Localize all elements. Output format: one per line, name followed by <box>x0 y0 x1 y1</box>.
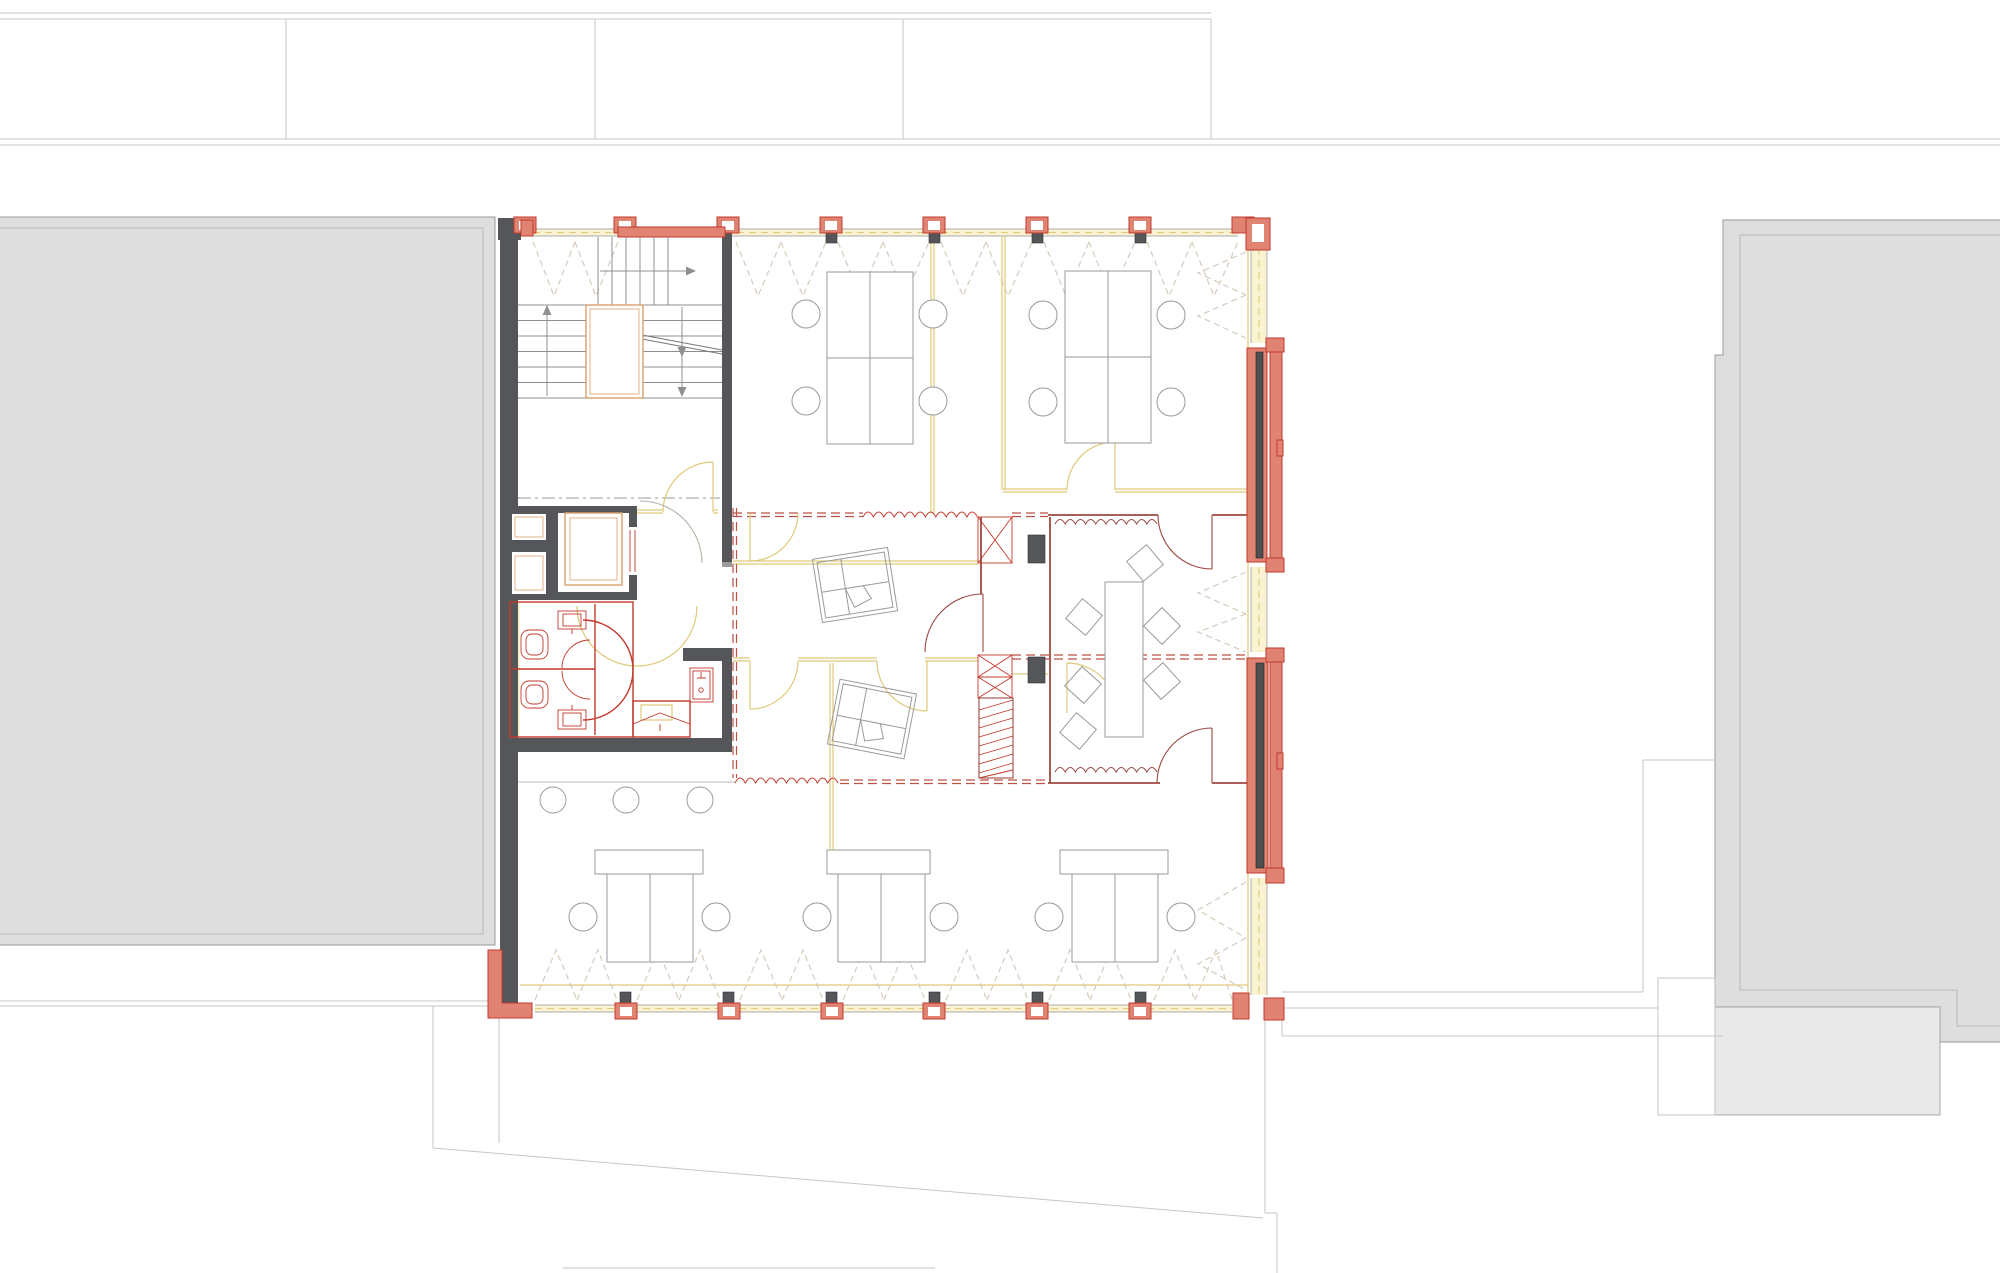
side-passage <box>1658 978 1715 1115</box>
desk-group-top-b <box>1029 271 1185 443</box>
wall-cap <box>722 562 732 567</box>
floor-plan-drawing <box>0 0 2000 1273</box>
desk-group-bottom-3 <box>1035 850 1195 962</box>
stair-landing <box>586 305 643 398</box>
desk-group-bottom-2 <box>803 850 958 962</box>
center-room-door-2 <box>877 661 927 711</box>
shaft-hatched-riser <box>979 698 1013 778</box>
kitchenette <box>633 701 690 737</box>
wash-basin <box>558 705 586 729</box>
accessible-wc-door <box>583 620 633 720</box>
chair <box>687 787 713 813</box>
cell-room2-door <box>1157 728 1212 783</box>
street-parcels-band <box>0 13 2000 145</box>
shaft-x-upper <box>978 517 1012 563</box>
wc-south-wall <box>506 738 732 752</box>
cell-room1-door <box>1158 515 1212 569</box>
chair <box>540 787 566 813</box>
party-wall-left <box>500 225 518 1007</box>
floorplan-page <box>0 0 2000 1273</box>
stair-core-wall <box>722 231 732 562</box>
tilted-desk-group-2 <box>827 679 916 759</box>
site-context <box>0 13 2000 1273</box>
stair <box>518 237 722 398</box>
corner-mullion-se <box>1233 993 1284 1020</box>
center-room-door-1 <box>750 661 798 709</box>
elevator-shaft <box>504 506 637 600</box>
desk-group-top-a <box>792 272 947 444</box>
red-facade-panel-small <box>521 220 533 236</box>
office-b-door <box>1067 442 1115 490</box>
neighbour-building-left <box>0 217 495 945</box>
corner-mullion-ne <box>1232 217 1270 250</box>
corridor-sink-cabinet <box>690 668 713 702</box>
shaft-x-lower <box>978 655 1012 698</box>
red-facade-panel <box>618 227 725 237</box>
wc-block <box>510 602 713 737</box>
elevator-car <box>565 513 622 585</box>
toilet <box>521 681 548 708</box>
main-building-plan <box>488 217 1284 1020</box>
long-desk-cell-rooms <box>1105 582 1143 737</box>
corridor-door-swing <box>750 513 798 561</box>
chair <box>613 787 639 813</box>
balcony-window-bar <box>1256 352 1263 558</box>
neighbour-building-right <box>1658 220 2000 1115</box>
balcony-window-bar <box>1256 663 1264 868</box>
wavy-joint-line <box>863 512 977 517</box>
tilted-desk-group-1 <box>812 547 897 622</box>
desk-group-bottom-1 <box>569 850 730 962</box>
corridor-maroon-door <box>925 594 983 652</box>
toilet <box>521 630 548 659</box>
building-annex <box>1715 1007 1940 1115</box>
lobby-door-swing <box>663 462 713 512</box>
